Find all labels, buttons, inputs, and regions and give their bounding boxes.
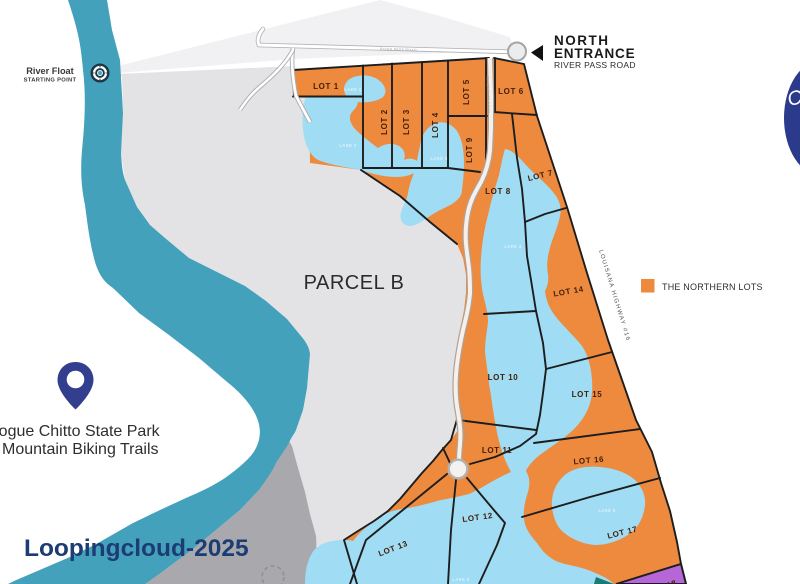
svg-text:LOT 6: LOT 6 bbox=[498, 87, 524, 96]
svg-text:LOT 4: LOT 4 bbox=[431, 112, 440, 138]
svg-text:LAKE 6: LAKE 6 bbox=[452, 577, 470, 582]
svg-text:LOT 11: LOT 11 bbox=[482, 446, 512, 455]
svg-text:LOT 5: LOT 5 bbox=[462, 79, 471, 105]
svg-text:LAKE 3: LAKE 3 bbox=[430, 156, 448, 161]
svg-text:Loopingcloud-2025: Loopingcloud-2025 bbox=[24, 535, 249, 562]
svg-text:LOT 15: LOT 15 bbox=[572, 390, 603, 399]
svg-text:LOT 9: LOT 9 bbox=[465, 137, 474, 163]
svg-text:LAKE 1: LAKE 1 bbox=[344, 87, 362, 92]
svg-text:LAKE 2: LAKE 2 bbox=[339, 143, 357, 148]
svg-text:LOT 1: LOT 1 bbox=[313, 82, 339, 91]
svg-text:LOT 3: LOT 3 bbox=[402, 109, 411, 135]
svg-text:LOT 10: LOT 10 bbox=[488, 373, 519, 382]
svg-text:PARCEL B: PARCEL B bbox=[304, 272, 405, 294]
svg-text:River Float: River Float bbox=[26, 66, 73, 76]
svg-text:THE NORTHERN LOTS: THE NORTHERN LOTS bbox=[662, 282, 763, 292]
svg-text:Mountain Biking Trails: Mountain Biking Trails bbox=[2, 441, 159, 458]
svg-text:RIVER PASS ROAD: RIVER PASS ROAD bbox=[554, 60, 636, 70]
svg-text:LAKE 5: LAKE 5 bbox=[598, 508, 616, 513]
svg-text:LOT 2: LOT 2 bbox=[380, 109, 389, 135]
svg-text:STARTING POINT: STARTING POINT bbox=[24, 78, 77, 84]
svg-text:LOT 8: LOT 8 bbox=[485, 187, 511, 196]
svg-text:LAKE 4: LAKE 4 bbox=[504, 244, 522, 249]
svg-text:ENTRANCE: ENTRANCE bbox=[554, 46, 635, 61]
svg-text:Bogue Chitto State Park: Bogue Chitto State Park bbox=[0, 423, 161, 440]
